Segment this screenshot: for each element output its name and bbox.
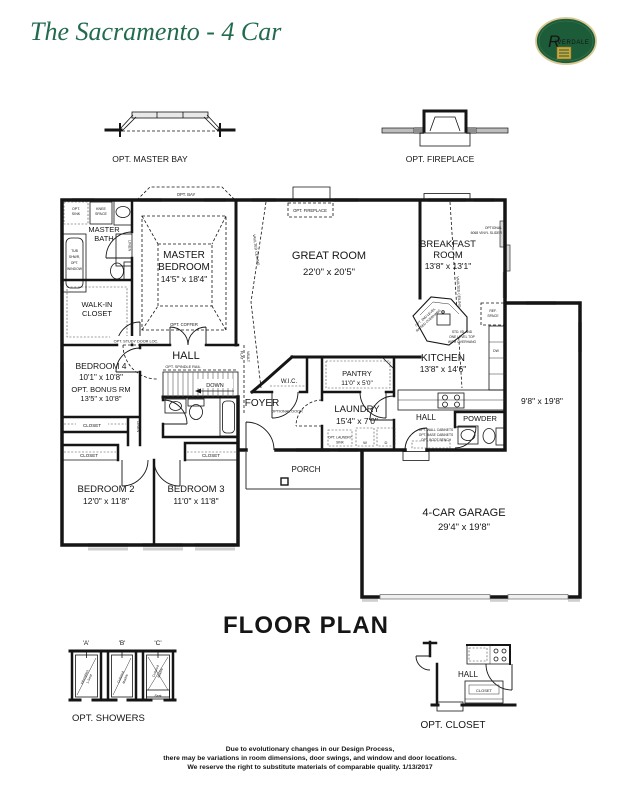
label-master-bath-2: BATH (94, 234, 113, 243)
ann-spindle-rail: OPT. SPINDLE RAIL (165, 365, 200, 369)
label-bedroom2: BEDROOM 2 (77, 484, 134, 495)
ann-tub-1: TUB (71, 249, 79, 253)
shower-c-seat: Seat (155, 694, 162, 698)
detail-opt-showers: 'A' 'B' 'C' Fiberglass 1-Seat Culture (70, 640, 175, 724)
label-pantry-dims: 11'0" x 5'0" (341, 380, 373, 387)
opt-closet-label: OPT. CLOSET (420, 720, 485, 731)
label-master-bedroom-2: BEDROOM (158, 262, 210, 273)
ann-std-island-1: STD. ISLAND (452, 330, 473, 334)
ann-slider-2: 6068 VINYL SLIDER (471, 231, 503, 235)
vanity (114, 201, 132, 225)
riverdale-logo: R IVERDALE (536, 18, 596, 64)
great-room-vault-line (251, 202, 266, 388)
fireplace-wing-right (476, 128, 508, 133)
label-bedroom3-dims: 11'0" x 11'8" (173, 496, 218, 506)
ann-opt-fireplace: OPT. FIREPLACE (293, 208, 327, 213)
fireplace-firebox-inner (430, 117, 460, 131)
ann-opt-laundry-sink-2: SINK (336, 441, 344, 445)
label-laundry: LAUNDRY (334, 404, 380, 415)
ann-std-island-2: ONE LEVEL TOP (449, 335, 476, 339)
ann-knee-2: SPACE (95, 212, 108, 216)
hall-bath-toilet-tank (188, 399, 204, 406)
label-kitchen: KITCHEN (421, 353, 465, 364)
hall-bath-door (163, 400, 187, 424)
label-master-bath-1: MASTER (88, 225, 120, 234)
garage-stoop (403, 452, 429, 461)
toilet-bowl-icon (111, 263, 124, 279)
label-master-bedroom-1: MASTER (163, 250, 205, 261)
ann-base-cabinets: OPT. BASE CABINETS (419, 433, 454, 437)
boot-bench-box (412, 441, 450, 448)
fireplace-firebox (424, 111, 466, 131)
garage-door-1 (380, 595, 490, 600)
label-great-room-dims: 22'0" x 20'5" (303, 267, 355, 278)
powder-toilet-bowl (483, 429, 495, 444)
stairs (163, 372, 238, 397)
label-bedroom4-dims: 10'1" x 10'8" (79, 373, 123, 382)
label-bedroom2-dims: 12'0" x 11'8" (83, 496, 129, 506)
fireplace-wing-left (382, 128, 414, 133)
closet-box: CLOSET (465, 681, 503, 703)
porch-column (281, 478, 288, 485)
hall-bath-tub-inner (223, 401, 235, 433)
ann-tub-2: SHWR, (69, 255, 80, 259)
label-closet-bed4: CLOSET (83, 423, 101, 428)
ann-tub-3: OPT. (71, 261, 79, 265)
fireplace-bump (293, 187, 330, 200)
detail-opt-fireplace: OPT. FIREPLACE (382, 111, 508, 164)
label-porch: PORCH (292, 465, 321, 474)
ann-optional-door: OPTIONAL DOOR (271, 410, 303, 414)
ann-washer: W (363, 440, 367, 445)
disclaimer: Due to evolutionary changes in our Desig… (163, 746, 457, 771)
label-closet-bed2: CLOSET (80, 453, 98, 458)
ann-slider-1: OPTIONAL (485, 226, 502, 230)
opt-showers-label: OPT. SHOWERS (72, 713, 145, 724)
label-rear-hall: HALL (416, 413, 437, 422)
ann-opt-coffer: OPT. COFFER (170, 322, 198, 327)
ann-dw: DW (493, 349, 499, 353)
closet-threshold (437, 702, 463, 711)
label-breakfast-1: BREAKFAST (420, 239, 476, 250)
label-breakfast-dims: 13'8" x 13'1" (425, 261, 472, 271)
label-closet-bed3: CLOSET (202, 453, 220, 458)
shower-b-tag: 'B' (119, 640, 126, 647)
page-title: The Sacramento - 4 Car (30, 17, 282, 46)
bay-window-band (132, 112, 208, 118)
ann-ref-1: REF. (489, 309, 496, 313)
hall-bath-sink-icon (170, 402, 182, 411)
front-door (246, 422, 274, 450)
label-bedroom4: BEDROOM 4 (75, 361, 126, 371)
ann-ref-2: SPACE (487, 314, 499, 318)
shower-a-tag: 'A' (83, 640, 90, 647)
fireplace-hearth (420, 133, 470, 146)
bedroom2-door (122, 460, 148, 486)
label-great-room: GREAT ROOM (292, 250, 366, 262)
label-wic: W.I.C. (281, 379, 298, 385)
label-breakfast-2: ROOM (433, 250, 463, 261)
label-master-bedroom-dims: 14'5" x 18'4" (161, 274, 208, 284)
hall-bath-toilet-bowl (190, 405, 203, 420)
label-garage-dims: 29'4" x 19'8" (438, 522, 490, 533)
sink-oval-icon (116, 207, 130, 218)
powder-toilet-tank (496, 428, 504, 445)
coffer-outer (142, 216, 226, 330)
ann-vault-great-room: VAULTED CEILING (252, 234, 260, 266)
label-walkin-2: CLOSET (82, 309, 112, 318)
label-garage: 4-CAR GARAGE (422, 507, 505, 519)
label-bonus: OPT. BONUS RM (71, 385, 130, 394)
coffer-diagonals (142, 216, 226, 330)
interior-walls-thick (163, 200, 420, 397)
label-walkin-1: WALK-IN (82, 300, 113, 309)
detail-opt-closet: CLOSET HALL OPT. CLOSET (416, 642, 515, 731)
label-foyer: FOYER (245, 398, 279, 409)
opt-fireplace-label: OPT. FIREPLACE (406, 154, 475, 164)
ann-opt-sink-2: SINK (72, 212, 81, 216)
shower-c: Seat Cultured Marble (141, 651, 175, 700)
ann-std-island-3: WITH OVERHANG (448, 340, 477, 344)
ann-flat-vault-1: FLAT (240, 351, 244, 360)
bay-end-caps (120, 124, 220, 136)
label-pantry: PANTRY (342, 369, 372, 378)
opt-master-bay-label: OPT. MASTER BAY (112, 154, 188, 164)
label-bedroom3: BEDROOM 3 (167, 484, 224, 495)
disclaimer-line-2: there may be variations in room dimensio… (163, 755, 457, 762)
label-linen-hall: LINEN (136, 421, 140, 432)
label-laundry-dims: 15'4" x 7'0" (336, 416, 378, 426)
header: The Sacramento - 4 Car R IVERDALE (30, 17, 596, 64)
label-bonus-dims: 13'5" x 10'8" (80, 394, 121, 403)
closet-counter (467, 645, 510, 664)
detail-opt-master-bay: OPT. MASTER BAY (106, 112, 234, 164)
ann-opt-laundry-sink-1: OPT. LAUNDRY (328, 436, 353, 440)
ann-tub-4: WINDOW (67, 267, 83, 271)
label-bay-dims: 9'8" x 19'8" (521, 396, 563, 406)
shower-b: Cultured Marble (106, 651, 138, 700)
bedroom3-door (154, 460, 180, 486)
pantry-corner-shelf (382, 357, 394, 369)
ann-knee-1: KNEE (96, 207, 106, 211)
ann-down: DOWN (206, 383, 223, 389)
label-powder: POWDER (463, 414, 497, 423)
disclaimer-line-1: Due to evolutionary changes in our Desig… (226, 746, 395, 753)
label-kitchen-dims: 13'8" x 14'6" (420, 364, 467, 374)
shower-a: Fiberglass 1-Seat (70, 651, 103, 700)
closet-hall-label: HALL (458, 670, 479, 679)
closet-box-label: CLOSET (476, 688, 493, 693)
label-linen-bath: LINEN (128, 240, 132, 251)
ann-study-door: OPT. STUDY DOOR LOC. (114, 340, 159, 344)
ann-opt-bay: OPT. BAY (177, 192, 196, 197)
floor-plan-title: FLOOR PLAN (223, 612, 389, 639)
logo-wordmark: IVERDALE (555, 40, 589, 46)
shower-c-tag: 'C' (154, 640, 161, 647)
ann-flat-vault-2: VAULT (246, 351, 250, 363)
ann-opt-sink-1: OPT. (72, 207, 80, 211)
powder-fixtures (458, 426, 504, 445)
garage-door-2 (508, 595, 568, 600)
ann-dryer: D (385, 440, 388, 445)
label-hall: HALL (172, 350, 200, 362)
disclaimer-line-3: We reserve the right to substitute mater… (187, 764, 432, 771)
floor-plan-drawing: MASTER BATH WALK-IN CLOSET MASTER BEDROO… (60, 187, 582, 602)
ann-wall-cabinets: OPT. WALL CABINETS (419, 428, 454, 432)
ann-boot-bench: OPT. BOOT BENCH (421, 438, 452, 442)
floor-plan-page: The Sacramento - 4 Car R IVERDALE OPT. M… (0, 0, 618, 800)
